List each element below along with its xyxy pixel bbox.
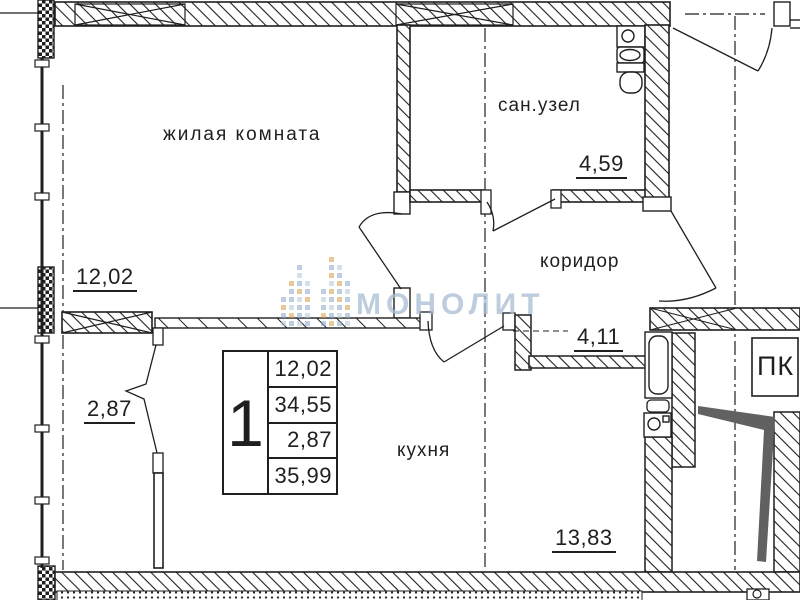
floor-plan: МОНОЛИТ жилая комната 12,02 сан.узел 4,5…: [0, 0, 800, 600]
area-label-kitchen: 13,83: [552, 527, 616, 553]
axis-stubs: [0, 13, 38, 308]
kitchen-door: [428, 321, 504, 362]
area-label-bathroom: 4,59: [576, 153, 627, 179]
balcony-partition: [153, 453, 163, 568]
bathtub-icon: [645, 332, 672, 398]
washing-machine2-icon: [644, 413, 671, 437]
area-label-balcony: 2,87: [84, 398, 135, 424]
sink2-icon: [647, 400, 669, 412]
hall-door: [659, 211, 716, 301]
bathroom-door: [487, 199, 555, 231]
washing-machine-icon: [617, 26, 645, 47]
entrance-walls: [643, 2, 800, 211]
stamp-apartment-area: 34,55: [269, 388, 336, 424]
living-room-door: [359, 213, 402, 289]
watermark-logo: [281, 257, 350, 326]
living-bathroom-wall: [394, 25, 410, 318]
stamp-balcony-area: 2,87: [269, 424, 336, 460]
room-label-living: жилая комната: [163, 125, 321, 144]
area-label-corridor: 4,11: [574, 326, 623, 352]
stamp-living-area: 12,02: [269, 352, 336, 388]
stairwell-label: ПК: [757, 353, 794, 380]
room-label-corridor: коридор: [540, 252, 620, 271]
toilet-icon: [617, 63, 644, 93]
sink-icon: [617, 47, 644, 63]
room-label-kitchen: кухня: [397, 441, 450, 460]
entrance-door: [673, 28, 772, 71]
stamp-total-area: 35,99: [269, 459, 336, 493]
left-glazing: [35, 0, 55, 600]
stamp-table: 1 12,02 34,55 2,87 35,99: [222, 350, 338, 495]
area-label-living: 12,02: [73, 266, 137, 292]
bathroom-wall: [410, 190, 650, 214]
room-label-bathroom: сан.узел: [498, 96, 581, 115]
top-wall: [55, 2, 670, 26]
watermark-text: МОНОЛИТ: [356, 290, 545, 320]
bottom-wall: [55, 572, 800, 600]
stamp-rooms-count: 1: [224, 352, 269, 493]
